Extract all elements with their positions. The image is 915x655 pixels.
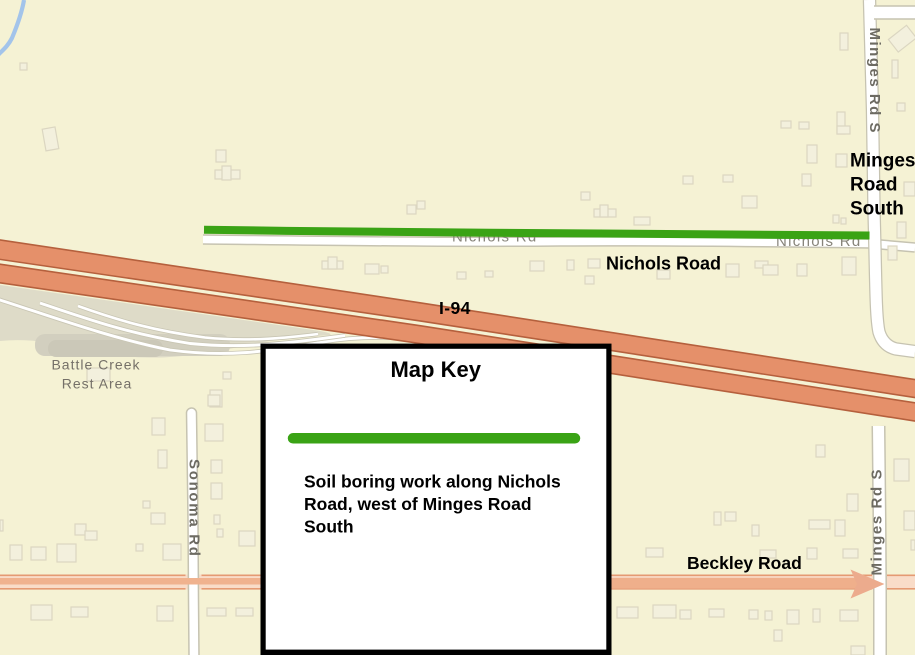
svg-text:Minges Rd S: Minges Rd S: [869, 468, 886, 576]
svg-text:Battle Creek: Battle Creek: [51, 357, 140, 373]
svg-text:Map Key: Map Key: [390, 357, 481, 382]
svg-text:South: South: [304, 517, 354, 537]
svg-text:Soil boring work along Nichols: Soil boring work along Nichols: [304, 472, 561, 492]
svg-text:South: South: [850, 199, 904, 220]
svg-text:Minges Rd S: Minges Rd S: [866, 28, 883, 135]
svg-text:Nichols Road: Nichols Road: [606, 254, 721, 274]
svg-text:Sonoma Rd: Sonoma Rd: [186, 459, 203, 558]
svg-text:I-94: I-94: [439, 298, 471, 318]
svg-text:Road, west of Minges Road: Road, west of Minges Road: [304, 494, 532, 514]
svg-text:Rest Area: Rest Area: [62, 376, 132, 392]
svg-text:Road: Road: [850, 175, 898, 196]
svg-text:Beckley Road: Beckley Road: [687, 553, 802, 573]
svg-text:Minges: Minges: [850, 151, 915, 172]
